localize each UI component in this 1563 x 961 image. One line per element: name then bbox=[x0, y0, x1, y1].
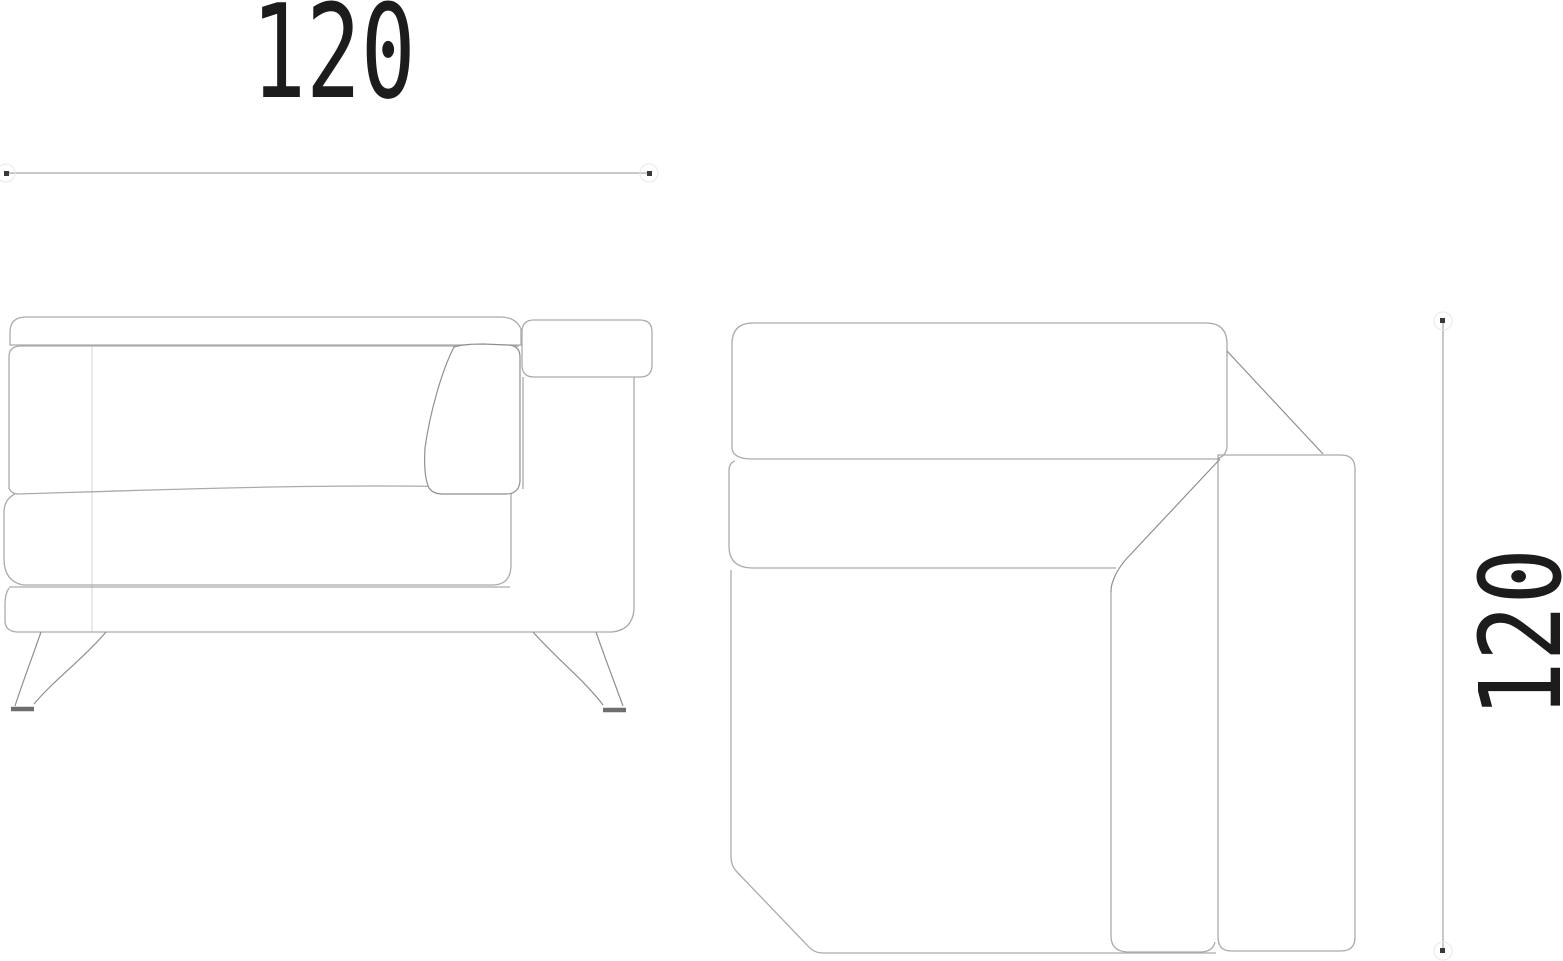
sofa-technical-drawing bbox=[0, 0, 1563, 961]
right-dimension-value: 120 bbox=[1466, 548, 1563, 718]
plan-seat-deck bbox=[731, 570, 1216, 953]
side-elevation-view bbox=[4, 317, 652, 710]
top-dimension-tick-right bbox=[647, 171, 652, 176]
corner-diagonal-lower bbox=[1111, 459, 1220, 592]
armrest-pad bbox=[522, 320, 652, 377]
corner-diagonal-upper bbox=[1227, 351, 1323, 454]
top-dimension-value: 120 bbox=[251, 0, 415, 117]
plan-backrest bbox=[732, 323, 1227, 459]
right-leg bbox=[533, 632, 626, 710]
seat-cushion bbox=[4, 488, 511, 585]
back-cushion bbox=[425, 344, 520, 494]
base-outline bbox=[5, 377, 634, 632]
top-dimension-tick-left bbox=[4, 171, 9, 176]
plan-armrest bbox=[1218, 455, 1355, 951]
plan-view bbox=[729, 323, 1355, 953]
backrest-top-rail bbox=[10, 317, 521, 345]
right-dimension-tick-top bbox=[1440, 318, 1445, 323]
plan-back-cushion-row bbox=[729, 461, 1116, 568]
right-dimension-tick-bottom bbox=[1440, 948, 1445, 953]
left-leg bbox=[11, 632, 106, 709]
top-dimension bbox=[0, 164, 658, 182]
drawing-canvas: 120 120 bbox=[0, 0, 1563, 961]
right-dimension bbox=[1434, 312, 1452, 960]
plan-side-seat-strip bbox=[1111, 592, 1215, 952]
